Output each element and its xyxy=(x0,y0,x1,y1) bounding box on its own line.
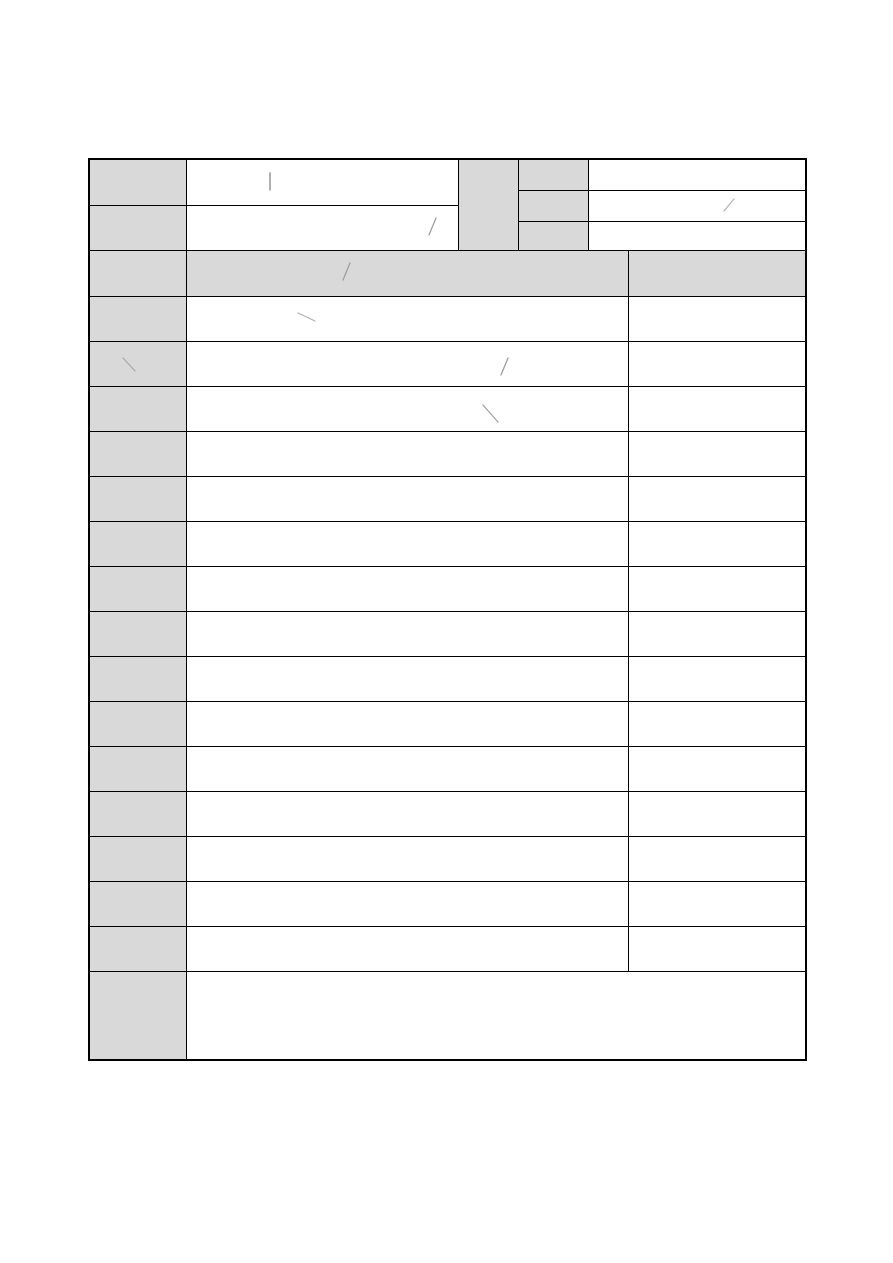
form-row-9 xyxy=(89,656,806,701)
row-value-cell[interactable] xyxy=(186,656,628,701)
form-row-4 xyxy=(89,431,806,476)
form-row-11 xyxy=(89,746,806,791)
row-value-cell[interactable] xyxy=(186,926,628,971)
row-extra-cell[interactable] xyxy=(628,341,806,386)
row-value-cell[interactable] xyxy=(186,611,628,656)
row-label-cell xyxy=(89,341,186,386)
row-value-cell[interactable] xyxy=(186,341,628,386)
header-value-cell-b[interactable] xyxy=(186,205,458,250)
row-extra-cell[interactable] xyxy=(628,386,806,431)
form-row-7 xyxy=(89,566,806,611)
row-label-cell xyxy=(89,431,186,476)
row-extra-cell[interactable] xyxy=(628,476,806,521)
row-extra-cell[interactable] xyxy=(628,611,806,656)
row-extra-cell[interactable] xyxy=(628,566,806,611)
row-label-cell xyxy=(89,521,186,566)
row-extra-cell[interactable] xyxy=(628,296,806,341)
form-row-12 xyxy=(89,791,806,836)
form-row-14 xyxy=(89,881,806,926)
header-sub-label-cell-3 xyxy=(518,221,588,250)
row-extra-cell[interactable] xyxy=(628,746,806,791)
header-sub-label-cell-2 xyxy=(518,190,588,221)
header-value-cell-a[interactable] xyxy=(186,159,458,205)
header-sub-label-cell-1 xyxy=(518,159,588,190)
row-label-cell xyxy=(89,746,186,791)
row-value-cell[interactable] xyxy=(186,881,628,926)
header-label-cell-a xyxy=(89,159,186,205)
form-row-15 xyxy=(89,926,806,971)
header-sub-value-cell-2[interactable] xyxy=(588,190,806,221)
row-label-cell xyxy=(89,566,186,611)
section-label-cell xyxy=(89,250,186,296)
row-extra-cell[interactable] xyxy=(628,881,806,926)
row-value-cell[interactable] xyxy=(186,476,628,521)
row-label-cell xyxy=(89,881,186,926)
row-value-cell[interactable] xyxy=(186,836,628,881)
row-extra-cell[interactable] xyxy=(628,521,806,566)
remarks-label-cell xyxy=(89,971,186,1060)
section-title-cell xyxy=(186,250,628,296)
form-row-5 xyxy=(89,476,806,521)
row-value-cell[interactable] xyxy=(186,521,628,566)
row-label-cell xyxy=(89,386,186,431)
row-label-cell xyxy=(89,836,186,881)
row-value-cell[interactable] xyxy=(186,386,628,431)
row-extra-cell[interactable] xyxy=(628,431,806,476)
form-row-8 xyxy=(89,611,806,656)
form-row-3 xyxy=(89,386,806,431)
row-value-cell[interactable] xyxy=(186,296,628,341)
header-label-cell-b xyxy=(89,205,186,250)
row-label-cell xyxy=(89,611,186,656)
form-row-2 xyxy=(89,341,806,386)
row-value-cell[interactable] xyxy=(186,701,628,746)
row-value-cell[interactable] xyxy=(186,431,628,476)
row-extra-cell[interactable] xyxy=(628,836,806,881)
header-sub-value-cell-1[interactable] xyxy=(588,159,806,190)
row-extra-cell[interactable] xyxy=(628,926,806,971)
section-extra-cell xyxy=(628,250,806,296)
row-extra-cell[interactable] xyxy=(628,791,806,836)
row-label-cell xyxy=(89,791,186,836)
header-sub-value-cell-3[interactable] xyxy=(588,221,806,250)
form-row-13 xyxy=(89,836,806,881)
remarks-row xyxy=(89,971,806,1060)
row-value-cell[interactable] xyxy=(186,746,628,791)
row-label-cell xyxy=(89,926,186,971)
form-row-6 xyxy=(89,521,806,566)
form-row-10 xyxy=(89,701,806,746)
row-label-cell xyxy=(89,701,186,746)
header-subrow-1 xyxy=(89,159,806,190)
row-value-cell[interactable] xyxy=(186,566,628,611)
row-label-cell xyxy=(89,476,186,521)
row-extra-cell[interactable] xyxy=(628,656,806,701)
section-header-row xyxy=(89,250,806,296)
header-center-shaded-cell xyxy=(458,159,518,250)
remarks-value-cell[interactable] xyxy=(186,971,806,1060)
row-value-cell[interactable] xyxy=(186,791,628,836)
blank-form-table xyxy=(88,158,807,1061)
form-row-1 xyxy=(89,296,806,341)
row-extra-cell[interactable] xyxy=(628,701,806,746)
row-label-cell xyxy=(89,656,186,701)
row-label-cell xyxy=(89,296,186,341)
document-page xyxy=(0,0,893,1263)
